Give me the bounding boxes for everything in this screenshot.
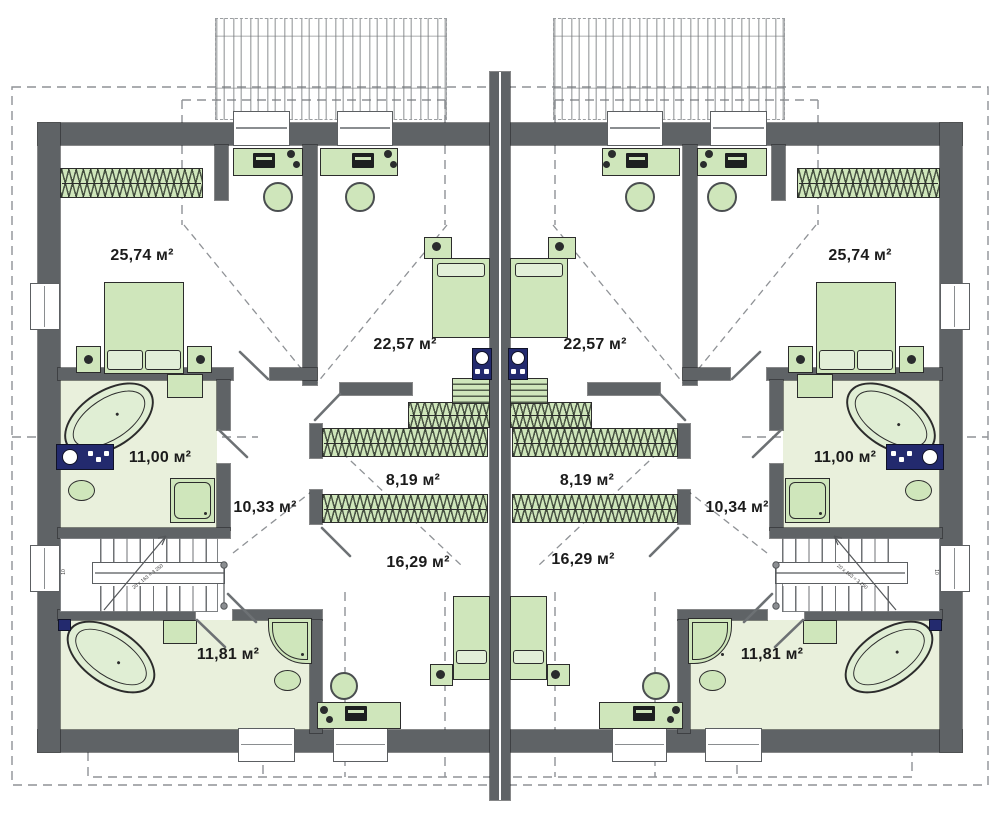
room-area-label: 11,81 м²: [197, 646, 259, 664]
room-area-label: 8,19 м²: [560, 472, 614, 490]
room-area-label: 10,34 м²: [705, 499, 768, 517]
room-area-label: 22,57 м²: [563, 336, 626, 354]
room-area-label: 10,33 м²: [233, 499, 296, 517]
room-area-label: 16,29 м²: [551, 551, 614, 569]
room-area-label: 25,74 м²: [110, 247, 173, 265]
room-area-label: 11,81 м²: [741, 646, 803, 664]
room-area-label: 16,29 м²: [386, 554, 449, 572]
stairs-count-label: 10: [933, 569, 939, 575]
room-area-label: 11,00 м²: [814, 449, 876, 467]
room-area-label: 8,19 м²: [386, 472, 440, 490]
room-area-label: 11,00 м²: [129, 449, 191, 467]
door-and-stair-lines: [0, 0, 1000, 822]
room-area-label: 25,74 м²: [828, 247, 891, 265]
stairs-count-label: 10: [61, 569, 67, 575]
room-area-label: 22,57 м²: [373, 336, 436, 354]
floor-plan-canvas: 25,74 м² 22,57 м² 11,00 м² 10,33 м² 8,19…: [0, 0, 1000, 822]
